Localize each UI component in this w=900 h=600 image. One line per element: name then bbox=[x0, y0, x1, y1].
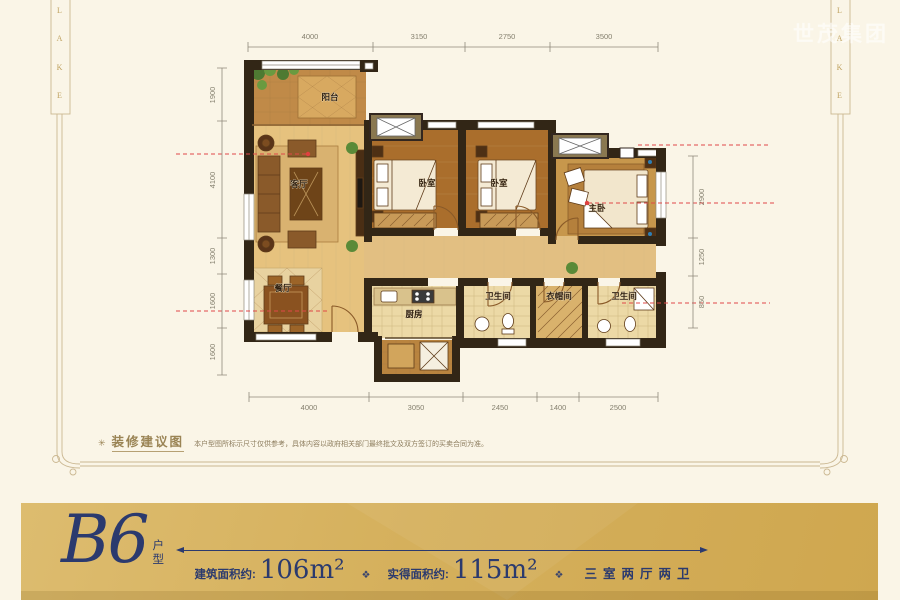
washbasin bbox=[598, 320, 611, 333]
arrow-left-icon bbox=[176, 547, 184, 553]
room-label-bedroom1: 卧室 bbox=[418, 178, 436, 188]
metric-built-area: 建筑面积约:106m² bbox=[194, 555, 344, 585]
metric-actual-area: 实得面积约:115m² bbox=[387, 555, 537, 585]
info-banner: B6 户 型 建筑面积约:106m² ❖ 实得面积约:115m² ❖ 三室两厅两… bbox=[21, 503, 878, 600]
arrow-right-icon bbox=[700, 547, 708, 553]
elevator-shaft bbox=[552, 134, 608, 158]
room-label-balcony: 阳台 bbox=[321, 92, 339, 102]
unit-suffix-bottom: 型 bbox=[153, 553, 165, 567]
frame-bottom-lines bbox=[80, 462, 820, 466]
lake-letter: L bbox=[837, 6, 843, 15]
layout-type-text: 三室两厅两卫 bbox=[585, 563, 696, 582]
room-label-dining: 餐厅 bbox=[273, 283, 292, 293]
floorplan-canvas: L A K E L A K E bbox=[0, 0, 900, 500]
pillow bbox=[377, 188, 388, 206]
room-label-bath1: 卫生间 bbox=[485, 291, 511, 301]
pillow bbox=[481, 188, 492, 206]
unit-suffix: 户 型 bbox=[153, 539, 165, 568]
room-label-master: 主卧 bbox=[588, 203, 606, 213]
pillow bbox=[637, 175, 647, 197]
dim-label: 3150 bbox=[411, 32, 428, 41]
dim-label: 3500 bbox=[596, 32, 613, 41]
dim-label: 4100 bbox=[208, 172, 217, 189]
dim-label: 4000 bbox=[301, 403, 318, 412]
dim-label: 4000 bbox=[302, 32, 319, 41]
flyer-page: L A K E L A K E bbox=[0, 0, 900, 600]
lake-letter: K bbox=[837, 63, 844, 72]
dim-label: 2500 bbox=[610, 403, 627, 412]
dimension-bottom: 4000 3050 2450 1400 2500 bbox=[249, 392, 658, 412]
dim-label: 2450 bbox=[492, 403, 509, 412]
metric-value: 115m² bbox=[453, 555, 538, 585]
unit-suffix-top: 户 bbox=[153, 539, 165, 553]
metric-label: 实得面积约: bbox=[387, 569, 448, 581]
toilet bbox=[625, 317, 636, 332]
dim-label: 1900 bbox=[208, 87, 217, 104]
nightstand bbox=[372, 146, 383, 157]
diamond-ornament-icon: ❖ bbox=[555, 570, 564, 581]
dimension-left: 1900 4100 1300 1600 1600 bbox=[208, 68, 227, 375]
banner-facet bbox=[347, 503, 638, 600]
dimension-right: 2900 1250 850 bbox=[688, 156, 706, 328]
chair bbox=[290, 276, 304, 285]
dimension-top: 4000 3150 2750 3500 bbox=[248, 32, 658, 52]
dim-label: 2750 bbox=[499, 32, 516, 41]
lake-letter: E bbox=[837, 91, 843, 100]
developer-watermark: 世茂集团 bbox=[793, 18, 900, 48]
dim-label: 1250 bbox=[697, 249, 706, 266]
room-label-kitchen: 厨房 bbox=[405, 309, 422, 319]
metric-value: 106m² bbox=[260, 555, 345, 585]
elevator-shaft bbox=[370, 114, 422, 140]
corner-flourish-left bbox=[53, 452, 81, 475]
room-label-living: 客厅 bbox=[289, 179, 308, 189]
asterisk-icon: ✳ bbox=[98, 438, 106, 449]
pillow bbox=[377, 164, 388, 182]
disclaimer-note: ✳ 装修建议图 本户型图所标示尺寸仅供参考，具体内容以政府相关部门最终批文及双方… bbox=[98, 431, 718, 452]
cabinet bbox=[388, 344, 414, 368]
metric-label: 建筑面积约: bbox=[194, 569, 255, 581]
corner-flourish-right bbox=[820, 452, 848, 475]
dim-label: 2900 bbox=[697, 189, 706, 206]
armchair bbox=[288, 231, 316, 248]
room-label-bedroom2: 卧室 bbox=[490, 178, 508, 188]
pillow bbox=[637, 202, 647, 224]
sink bbox=[381, 291, 397, 302]
diamond-ornament-icon: ❖ bbox=[362, 570, 371, 581]
wardrobe bbox=[480, 213, 538, 228]
dim-label: 3050 bbox=[408, 403, 425, 412]
washbasin bbox=[475, 317, 489, 331]
note-body: 本户型图所标示尺寸仅供参考，具体内容以政府相关部门最终批文及双方签订的买卖合同为… bbox=[194, 439, 488, 449]
room-label-bath2: 卫生间 bbox=[611, 291, 637, 301]
lake-letter: L bbox=[57, 6, 63, 15]
dim-label: 1600 bbox=[208, 293, 217, 310]
flue-box bbox=[620, 148, 634, 158]
note-title: 装修建议图 bbox=[112, 431, 185, 452]
unit-code: B6 bbox=[61, 505, 148, 574]
unit-code-block: B6 户 型 bbox=[61, 505, 164, 574]
banner-divider-line bbox=[184, 550, 700, 551]
frame-left-column: L A K E bbox=[51, 0, 80, 475]
toilet bbox=[503, 314, 514, 329]
dim-label: 1600 bbox=[208, 344, 217, 361]
stove bbox=[412, 290, 434, 303]
banner-metrics-row: 建筑面积约:106m² ❖ 实得面积约:115m² ❖ 三室两厅两卫 bbox=[177, 555, 713, 585]
frame-right-column: L A K E bbox=[820, 0, 850, 475]
dim-label: 850 bbox=[697, 296, 706, 309]
dim-label: 1300 bbox=[208, 248, 217, 265]
room-label-cloakroom: 衣帽间 bbox=[546, 291, 572, 301]
nightstand bbox=[476, 146, 487, 157]
dim-label: 1400 bbox=[550, 403, 567, 412]
lake-letter: A bbox=[57, 34, 64, 43]
lake-letter: E bbox=[57, 91, 63, 100]
lake-letter: K bbox=[57, 63, 64, 72]
